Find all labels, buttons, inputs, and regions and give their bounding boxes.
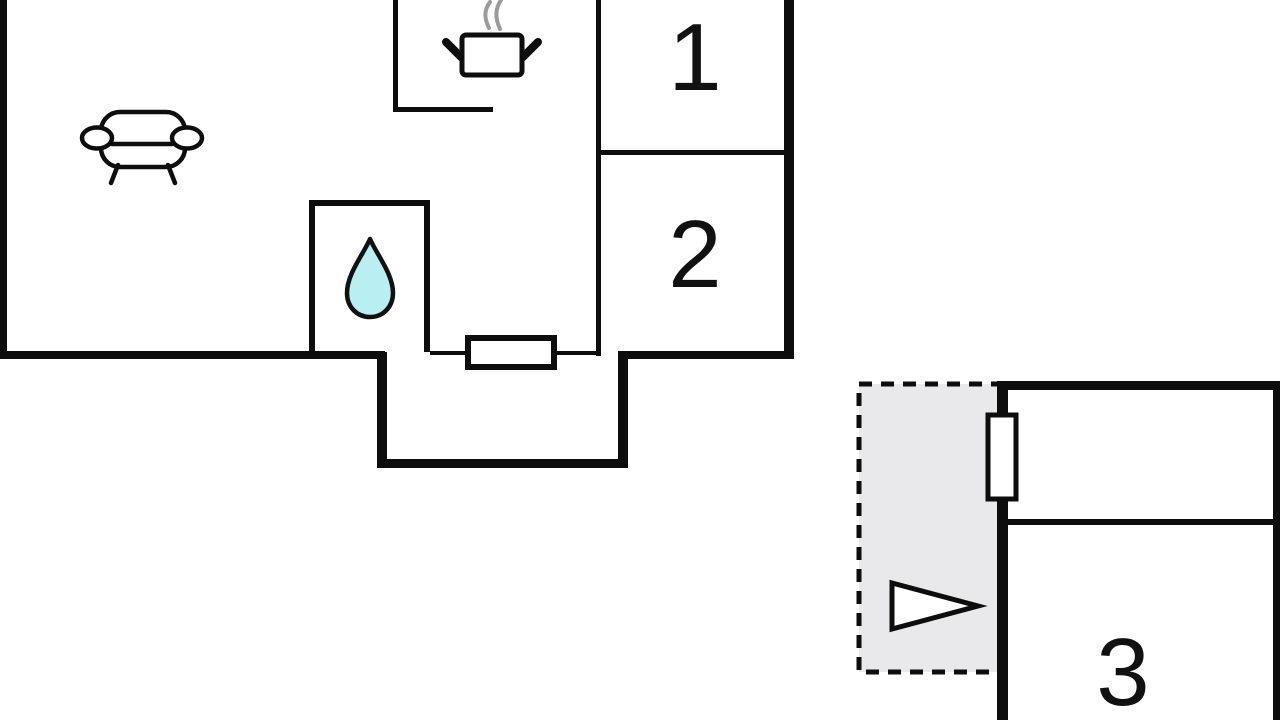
room-2-label: 2 — [600, 152, 790, 357]
annex-wall-top — [997, 381, 1280, 390]
sofa-icon — [82, 112, 202, 183]
window-icon — [988, 415, 1016, 499]
kitchen-partition-vertical — [393, 0, 398, 112]
pot-handle-right — [523, 42, 538, 57]
wall-bottom-left-segment — [0, 351, 385, 359]
pot-body — [462, 35, 522, 75]
bathroom-wall-right — [424, 200, 430, 352]
floor-plan: 1 2 3 — [0, 0, 1280, 720]
room-3-label: 3 — [1008, 598, 1238, 720]
entrance-zone-outline — [859, 384, 1000, 672]
sofa-armrest-left — [82, 128, 112, 149]
pot-handle-left — [446, 42, 461, 57]
room-1-label: 1 — [600, 0, 790, 115]
annex-room-divider — [1008, 519, 1273, 525]
porch-wall-left — [377, 352, 387, 467]
entrance-zone — [859, 384, 1000, 672]
porch-wall-bottom — [377, 459, 628, 468]
wall-left — [0, 0, 7, 359]
cooking-pot-icon — [446, 0, 538, 75]
bathroom-wall-top — [309, 200, 430, 206]
entrance-door-icon — [468, 338, 554, 367]
water-drop-icon — [347, 239, 393, 317]
porch-wall-right — [618, 352, 628, 468]
sofa-armrest-right — [172, 128, 202, 149]
kitchen-partition-horizontal — [393, 107, 493, 112]
bathroom-wall-left — [309, 200, 315, 352]
steam-icon — [496, 0, 501, 29]
annex-wall-right — [1273, 381, 1280, 720]
steam-icon — [485, 2, 490, 28]
